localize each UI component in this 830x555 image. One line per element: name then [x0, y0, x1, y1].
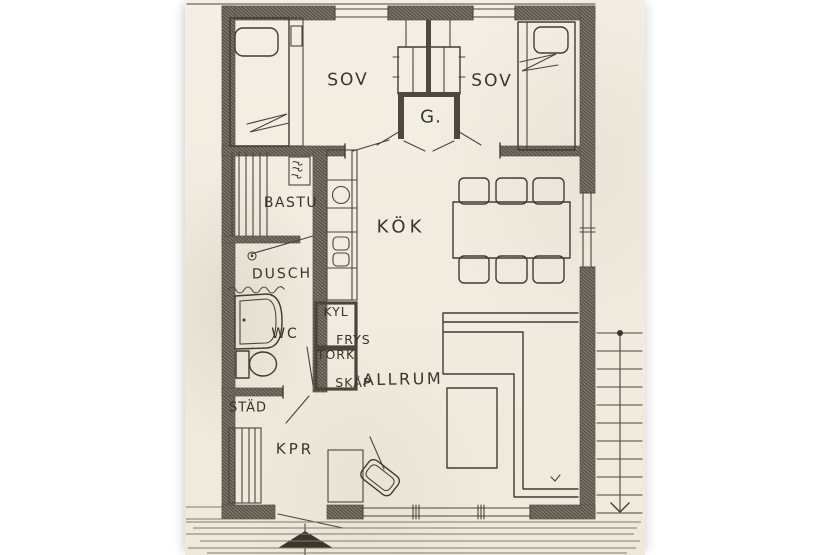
dining-set: [453, 178, 570, 283]
bed-left: [230, 18, 303, 146]
curtain-icon: [228, 287, 284, 293]
newel-post-icon: [617, 330, 623, 336]
sink-icon: [333, 187, 350, 204]
label-living-room: ALLRUM: [363, 369, 444, 389]
label-sauna: BASTU: [264, 195, 318, 211]
pillow-icon: [235, 28, 278, 56]
sauna-fixtures: [232, 152, 310, 236]
label-bedroom-right: SOV: [471, 71, 513, 92]
coffee-table: [447, 388, 497, 468]
stove-burner-icon: [333, 237, 349, 250]
kitchen-counter: [327, 150, 357, 300]
label-shower: DUSCH: [252, 265, 312, 282]
label-hall: KPR: [276, 440, 315, 459]
scanned-page: { "labels": { "bedroom_left": "SOV", "be…: [0, 0, 830, 555]
toilet-bowl-icon: [250, 352, 277, 376]
label-fridge-freezer: KYL FRYS: [301, 305, 370, 347]
stairs: [597, 330, 642, 513]
label-drying-cabinet: TORK SKÅP: [300, 348, 371, 390]
label-wc: WC: [271, 326, 299, 342]
pillow-icon: [534, 27, 568, 53]
floor-plan-paper: SOV SOV G. KÖK BASTU DUSCH WC KYL FRYS T…: [185, 0, 645, 555]
label-bedroom-left: SOV: [327, 70, 369, 91]
tilted-object: [358, 457, 401, 498]
entrance-marker: [278, 524, 333, 555]
chair: [496, 256, 527, 283]
blanket-fold-icon: [247, 114, 289, 132]
toilet-tank-icon: [236, 351, 249, 378]
label-cleaning: STÄD: [229, 401, 267, 416]
chair: [533, 256, 564, 283]
dining-table: [453, 202, 570, 258]
bed-right: [518, 22, 575, 150]
hall-furniture: [328, 437, 402, 502]
blanket-fold-icon: [520, 54, 558, 71]
sofa: [443, 313, 578, 497]
hall-bench: [328, 450, 363, 502]
wardrobe-closet-g: [377, 20, 481, 151]
chair: [533, 178, 564, 204]
label-closet-g: G.: [420, 107, 442, 128]
chair: [459, 178, 489, 204]
windows: [335, 6, 595, 519]
chair: [459, 256, 489, 283]
label-kitchen: KÖK: [377, 217, 426, 238]
chair: [496, 178, 527, 204]
stove-burner-icon: [333, 253, 349, 266]
